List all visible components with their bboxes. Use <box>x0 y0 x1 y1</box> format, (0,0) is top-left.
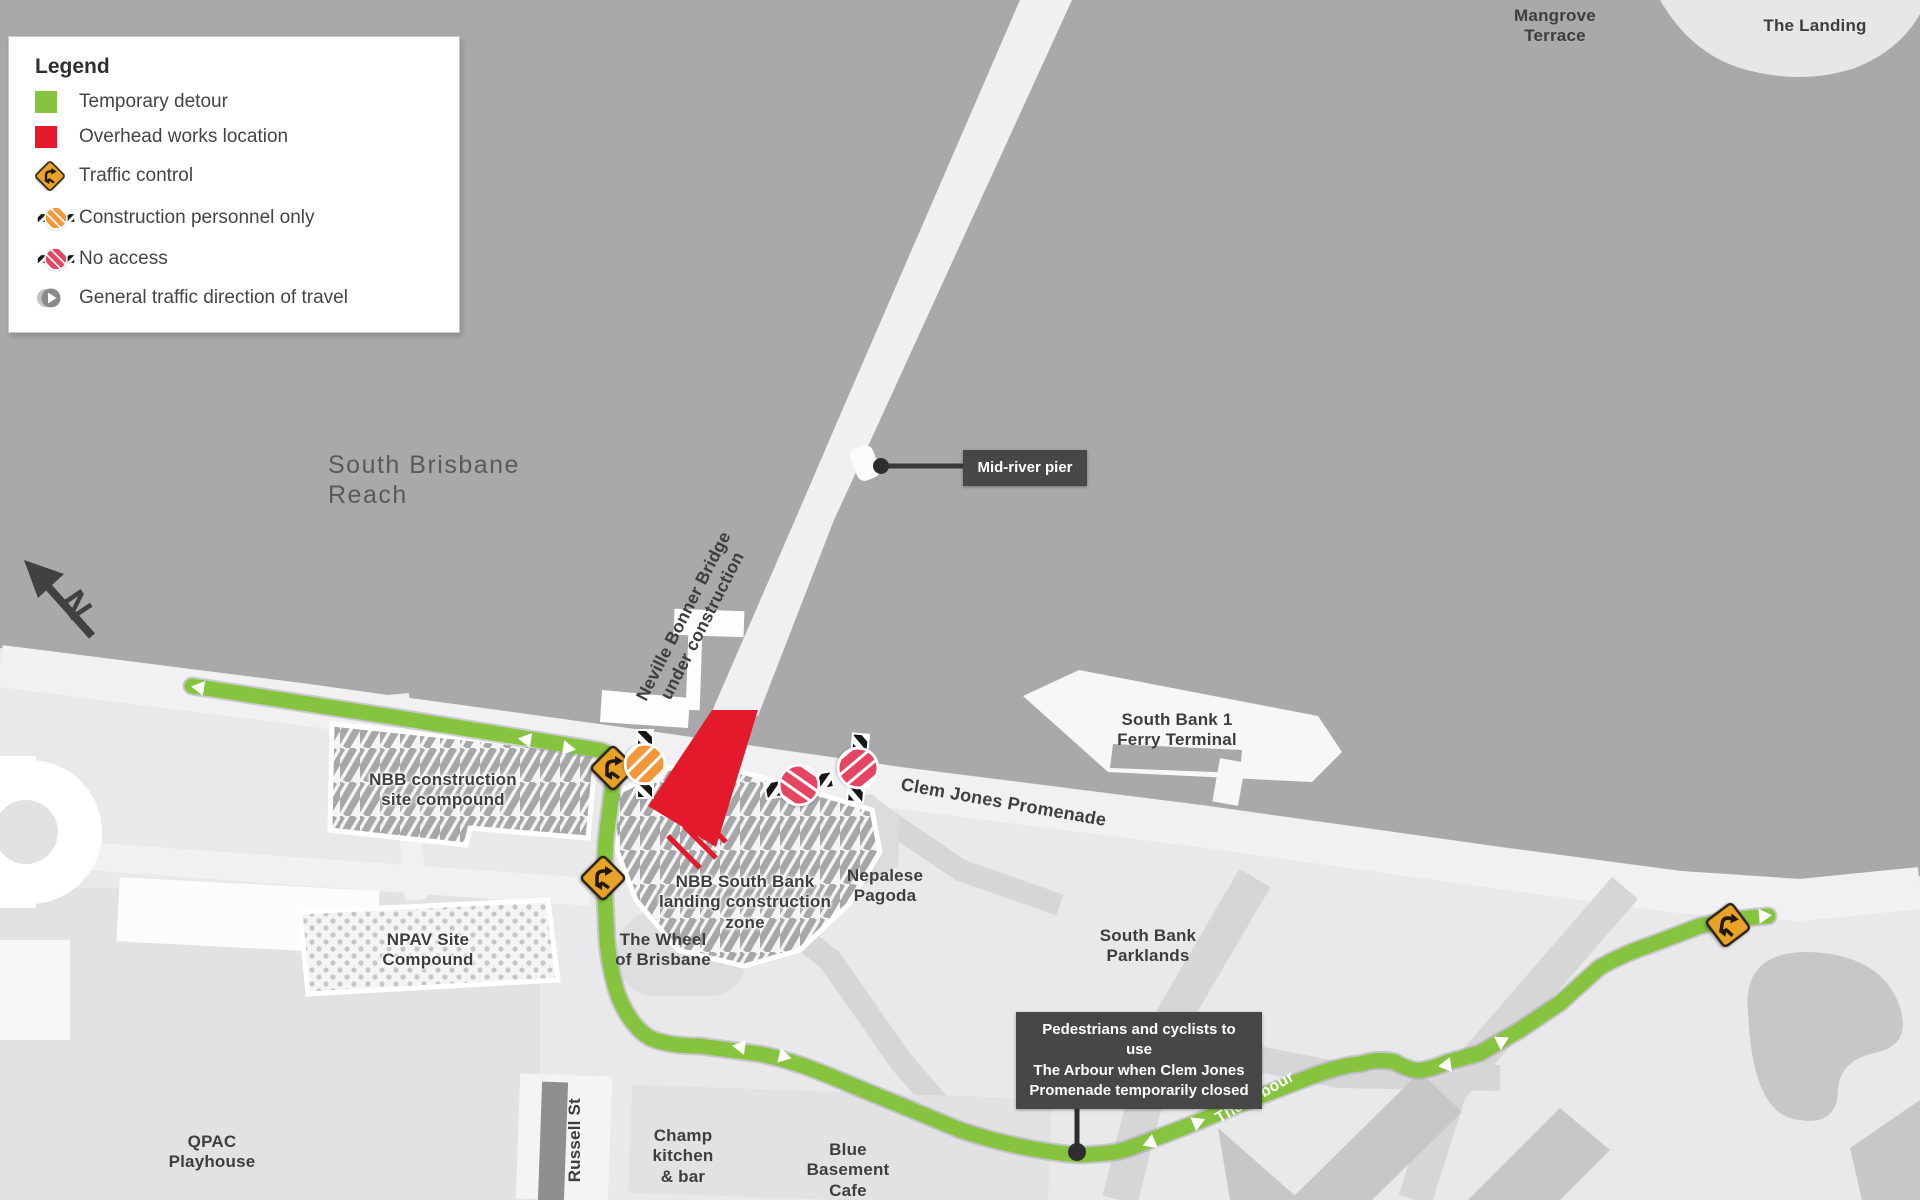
legend-item-traffic-control: Traffic control <box>35 161 439 191</box>
legend-item-construction-personnel: Construction personnel only <box>35 204 439 232</box>
label-south-brisbane-reach: South Brisbane Reach <box>328 450 608 510</box>
label-champ-kitchen: Champ kitchen & bar <box>623 1126 743 1187</box>
no-access-icon <box>35 245 79 273</box>
label-mangrove-terrace: Mangrove Terrace <box>1495 6 1615 47</box>
legend-title: Legend <box>35 55 439 79</box>
legend-item-no-access: No access <box>35 245 439 273</box>
callout-arbour-note: Pedestrians and cyclists to use The Arbo… <box>1016 1012 1262 1109</box>
label-russell-st: Russell St <box>565 1085 585 1195</box>
construction-personnel-icon <box>35 204 79 232</box>
temporary-detour-swatch <box>35 91 79 113</box>
traffic-direction-icon <box>35 286 79 310</box>
label-nbb-construction-site-compound: NBB construction site compound <box>343 770 543 811</box>
label-south-bank-parklands: South Bank Parklands <box>1068 926 1228 967</box>
label-nepalese-pagoda: Nepalese Pagoda <box>825 866 945 907</box>
label-nbb-south-bank-landing: NBB South Bank landing construction zone <box>645 872 845 933</box>
legend-item-temporary-detour: Temporary detour <box>35 91 439 113</box>
label-npav-site-compound: NPAV Site Compound <box>348 930 508 971</box>
legend-item-traffic-direction: General traffic direction of travel <box>35 286 439 310</box>
overhead-works-swatch <box>35 126 79 148</box>
legend-item-overhead-works: Overhead works location <box>35 126 439 148</box>
label-qpac-playhouse: QPAC Playhouse <box>132 1132 292 1173</box>
callout-mid-river-pier: Mid-river pier <box>963 450 1087 486</box>
detour-map: Legend Temporary detour Overhead works l… <box>0 0 1920 1200</box>
label-the-wheel-of-brisbane: The Wheel of Brisbane <box>583 930 743 971</box>
legend: Legend Temporary detour Overhead works l… <box>8 36 460 333</box>
label-the-landing: The Landing <box>1745 16 1885 36</box>
traffic-control-icon <box>35 161 79 191</box>
label-blue-basement-cafe: Blue Basement Cafe <box>788 1140 908 1200</box>
label-south-bank-1-ferry-terminal: South Bank 1 Ferry Terminal <box>1092 710 1262 751</box>
